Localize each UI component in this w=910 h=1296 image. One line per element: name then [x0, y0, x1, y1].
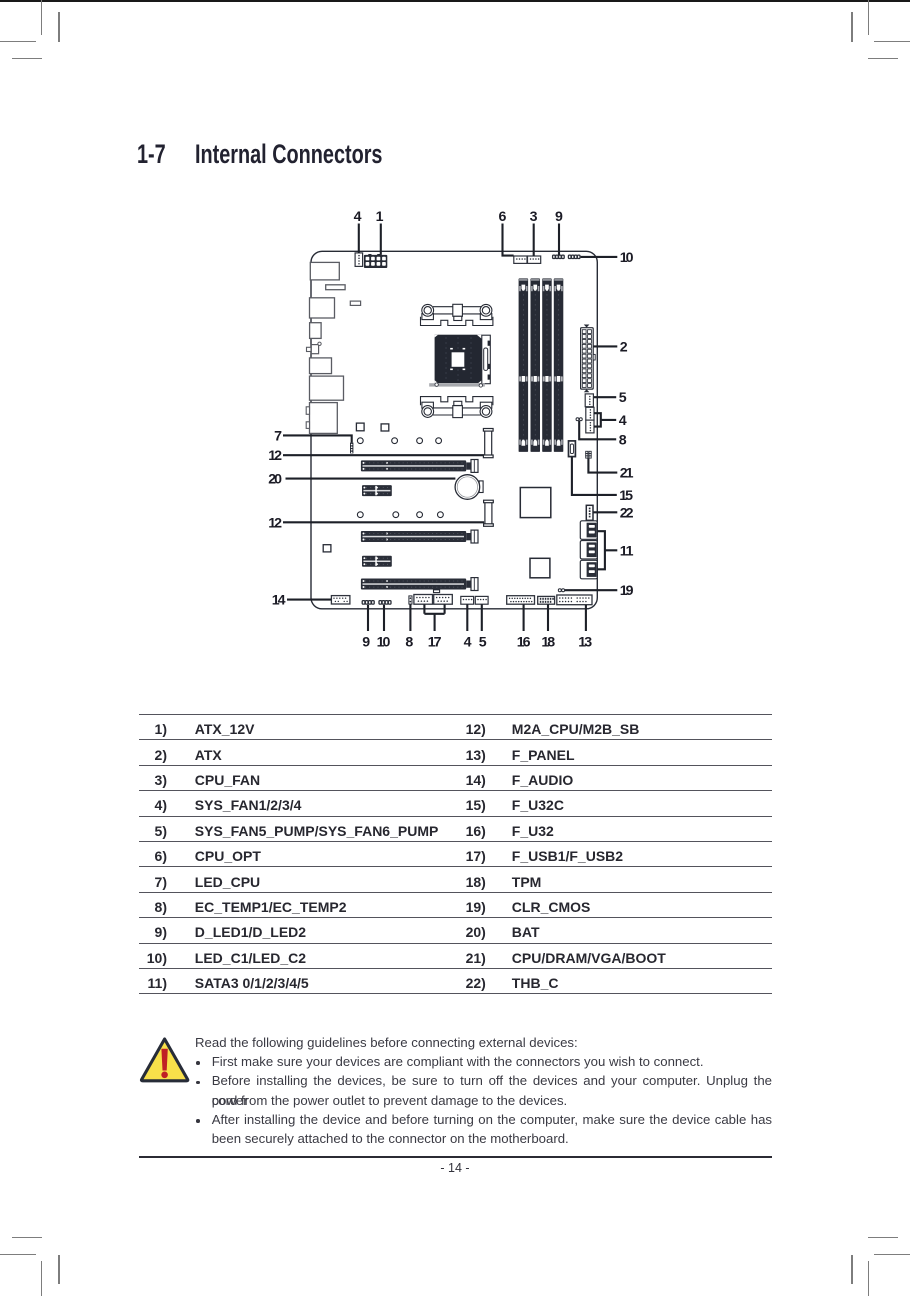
svg-text:9: 9	[555, 209, 563, 225]
svg-text:7: 7	[274, 428, 282, 444]
svg-text:12: 12	[268, 515, 282, 531]
svg-text:16: 16	[517, 634, 531, 650]
svg-text:9: 9	[362, 634, 370, 650]
svg-text:10: 10	[620, 250, 634, 266]
svg-text:8: 8	[619, 432, 627, 448]
svg-text:4: 4	[464, 634, 472, 650]
svg-text:5: 5	[479, 634, 487, 650]
svg-text:10: 10	[377, 634, 391, 650]
svg-text:8: 8	[405, 634, 413, 650]
svg-text:21: 21	[620, 466, 634, 482]
svg-text:19: 19	[620, 583, 634, 599]
svg-text:1: 1	[376, 209, 384, 225]
svg-text:20: 20	[268, 472, 282, 488]
svg-text:4: 4	[619, 413, 627, 429]
svg-text:18: 18	[541, 634, 555, 650]
svg-text:15: 15	[619, 488, 633, 504]
svg-text:12: 12	[268, 448, 282, 464]
svg-text:14: 14	[272, 593, 286, 609]
svg-text:22: 22	[620, 505, 634, 521]
svg-text:5: 5	[619, 390, 627, 406]
svg-text:11: 11	[620, 543, 634, 559]
svg-text:13: 13	[578, 634, 592, 650]
svg-text:2: 2	[620, 339, 628, 355]
svg-text:3: 3	[530, 209, 538, 225]
svg-text:6: 6	[499, 209, 507, 225]
svg-text:17: 17	[428, 634, 442, 650]
svg-text:4: 4	[354, 209, 362, 225]
